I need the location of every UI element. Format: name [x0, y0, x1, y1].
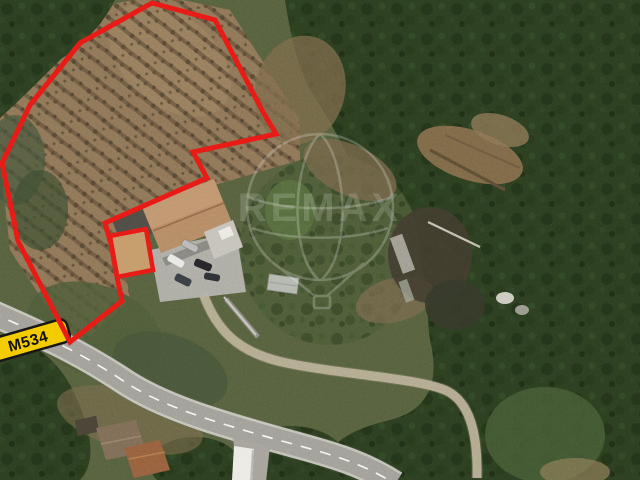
watermark-text: REMAX: [238, 186, 402, 230]
aerial-photo: M534 REMAX: [0, 0, 640, 480]
satellite-map-image[interactable]: M534 REMAX: [0, 0, 640, 480]
photo-grain: [0, 0, 640, 480]
